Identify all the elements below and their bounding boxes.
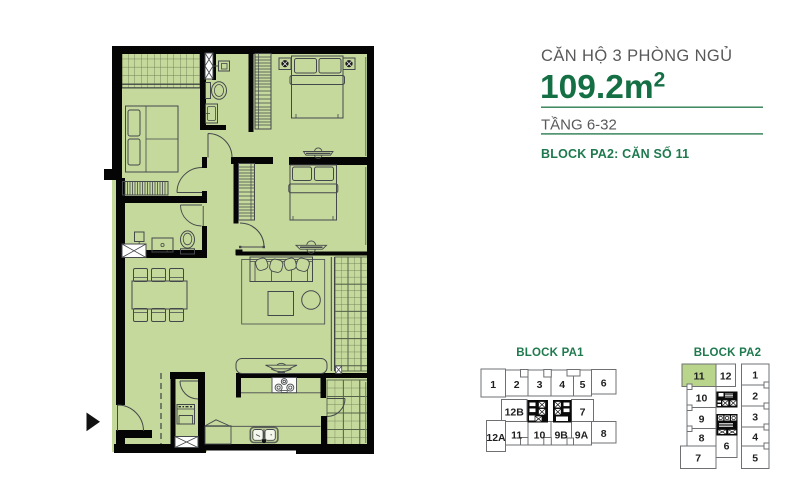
svg-text:12A: 12A: [486, 432, 506, 444]
svg-text:109.2m2: 109.2m2: [540, 69, 665, 107]
svg-text:11: 11: [511, 430, 522, 442]
svg-text:4: 4: [559, 379, 565, 391]
svg-text:10: 10: [696, 393, 708, 405]
svg-text:7: 7: [580, 407, 586, 419]
svg-text:8: 8: [699, 433, 705, 445]
svg-text:BLOCK PA2: BLOCK PA2: [694, 347, 761, 359]
svg-text:1: 1: [752, 370, 758, 382]
svg-text:3: 3: [752, 412, 758, 424]
svg-text:2: 2: [514, 379, 520, 391]
svg-text:1: 1: [490, 379, 496, 391]
svg-text:8: 8: [601, 428, 607, 440]
svg-text:12: 12: [720, 371, 732, 383]
svg-text:3: 3: [537, 379, 543, 391]
svg-text:11: 11: [693, 371, 704, 383]
svg-text:9B: 9B: [554, 430, 568, 442]
svg-text:2: 2: [752, 391, 758, 403]
svg-text:6: 6: [724, 441, 730, 453]
svg-text:10: 10: [534, 430, 546, 442]
svg-text:4: 4: [752, 432, 758, 444]
svg-text:BLOCK PA2: CĂN SỐ 11: BLOCK PA2: CĂN SỐ 11: [541, 146, 689, 161]
svg-text:6: 6: [601, 378, 607, 390]
svg-text:TẦNG 6-32: TẦNG 6-32: [541, 117, 617, 134]
svg-text:BLOCK PA1: BLOCK PA1: [516, 347, 584, 359]
svg-text:7: 7: [695, 453, 701, 465]
svg-text:12B: 12B: [505, 407, 525, 419]
svg-text:9: 9: [699, 414, 705, 426]
svg-text:CĂN HỘ 3 PHÒNG NGỦ: CĂN HỘ 3 PHÒNG NGỦ: [541, 46, 732, 65]
svg-text:5: 5: [580, 379, 586, 391]
svg-text:5: 5: [752, 453, 758, 465]
svg-text:9A: 9A: [575, 430, 589, 442]
